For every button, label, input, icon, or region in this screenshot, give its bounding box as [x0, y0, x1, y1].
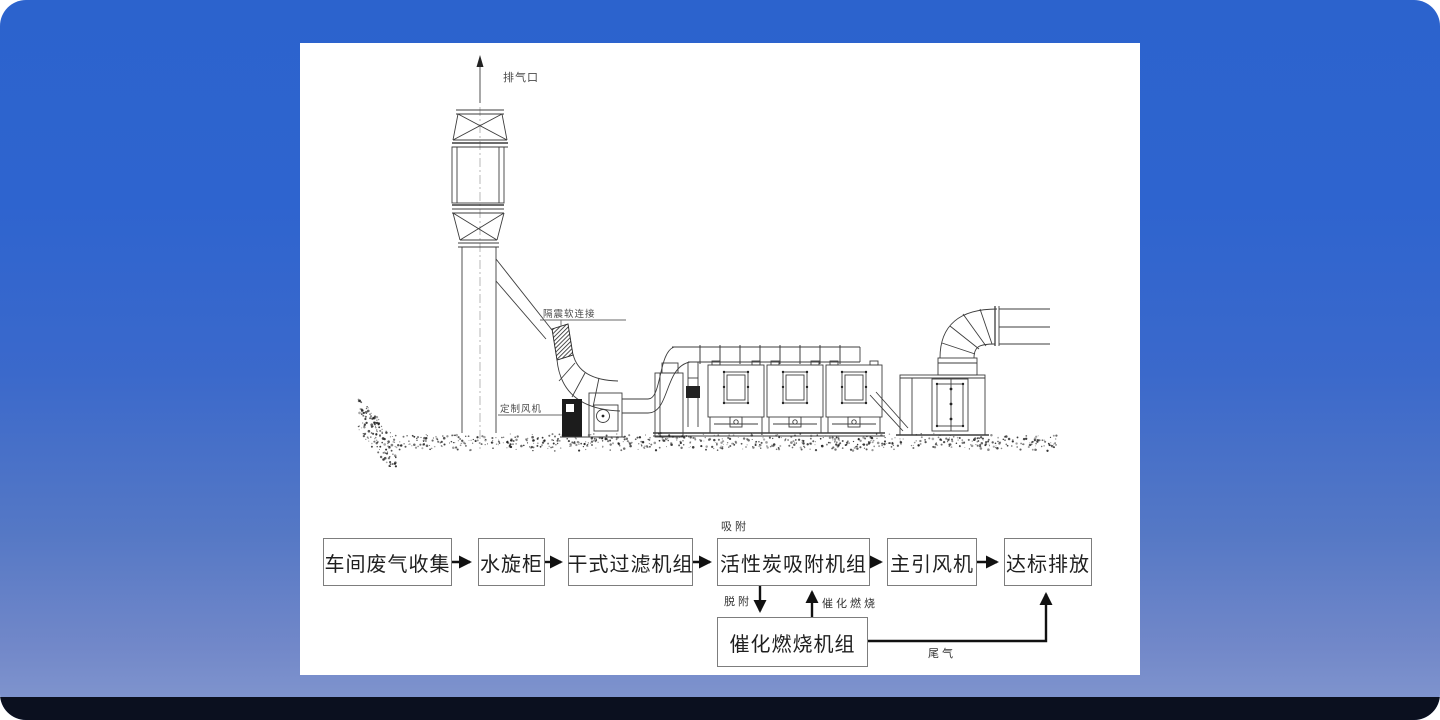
footer-bar	[0, 697, 1440, 720]
flow-box-main-fan: 主引风机	[887, 538, 977, 586]
slide-card: 排气口 隔震软连接 定制风机	[0, 0, 1440, 720]
adsorption-label: 吸附	[721, 518, 749, 534]
diagram-panel: 排气口 隔震软连接 定制风机	[300, 43, 1140, 675]
flow-box-workshop-gas-collection: 车间废气收集	[323, 538, 452, 586]
flow-box-compliant-discharge: 达标排放	[1004, 538, 1092, 586]
flowchart: 车间废气收集 水旋柜 干式过滤机组 活性炭吸附机组 主引风机 达标排放 催化燃烧…	[300, 43, 1140, 675]
flow-box-water-spray-cabinet: 水旋柜	[478, 538, 545, 586]
flow-box-dry-filter-unit: 干式过滤机组	[568, 538, 693, 586]
flow-box-catalytic-combustion-unit: 催化燃烧机组	[717, 617, 868, 667]
flow-box-activated-carbon-unit: 活性炭吸附机组	[717, 538, 870, 586]
catalytic-combustion-label: 催化燃烧	[822, 595, 878, 611]
desorption-label: 脱附	[724, 593, 752, 609]
tail-gas-label: 尾气	[928, 645, 956, 661]
